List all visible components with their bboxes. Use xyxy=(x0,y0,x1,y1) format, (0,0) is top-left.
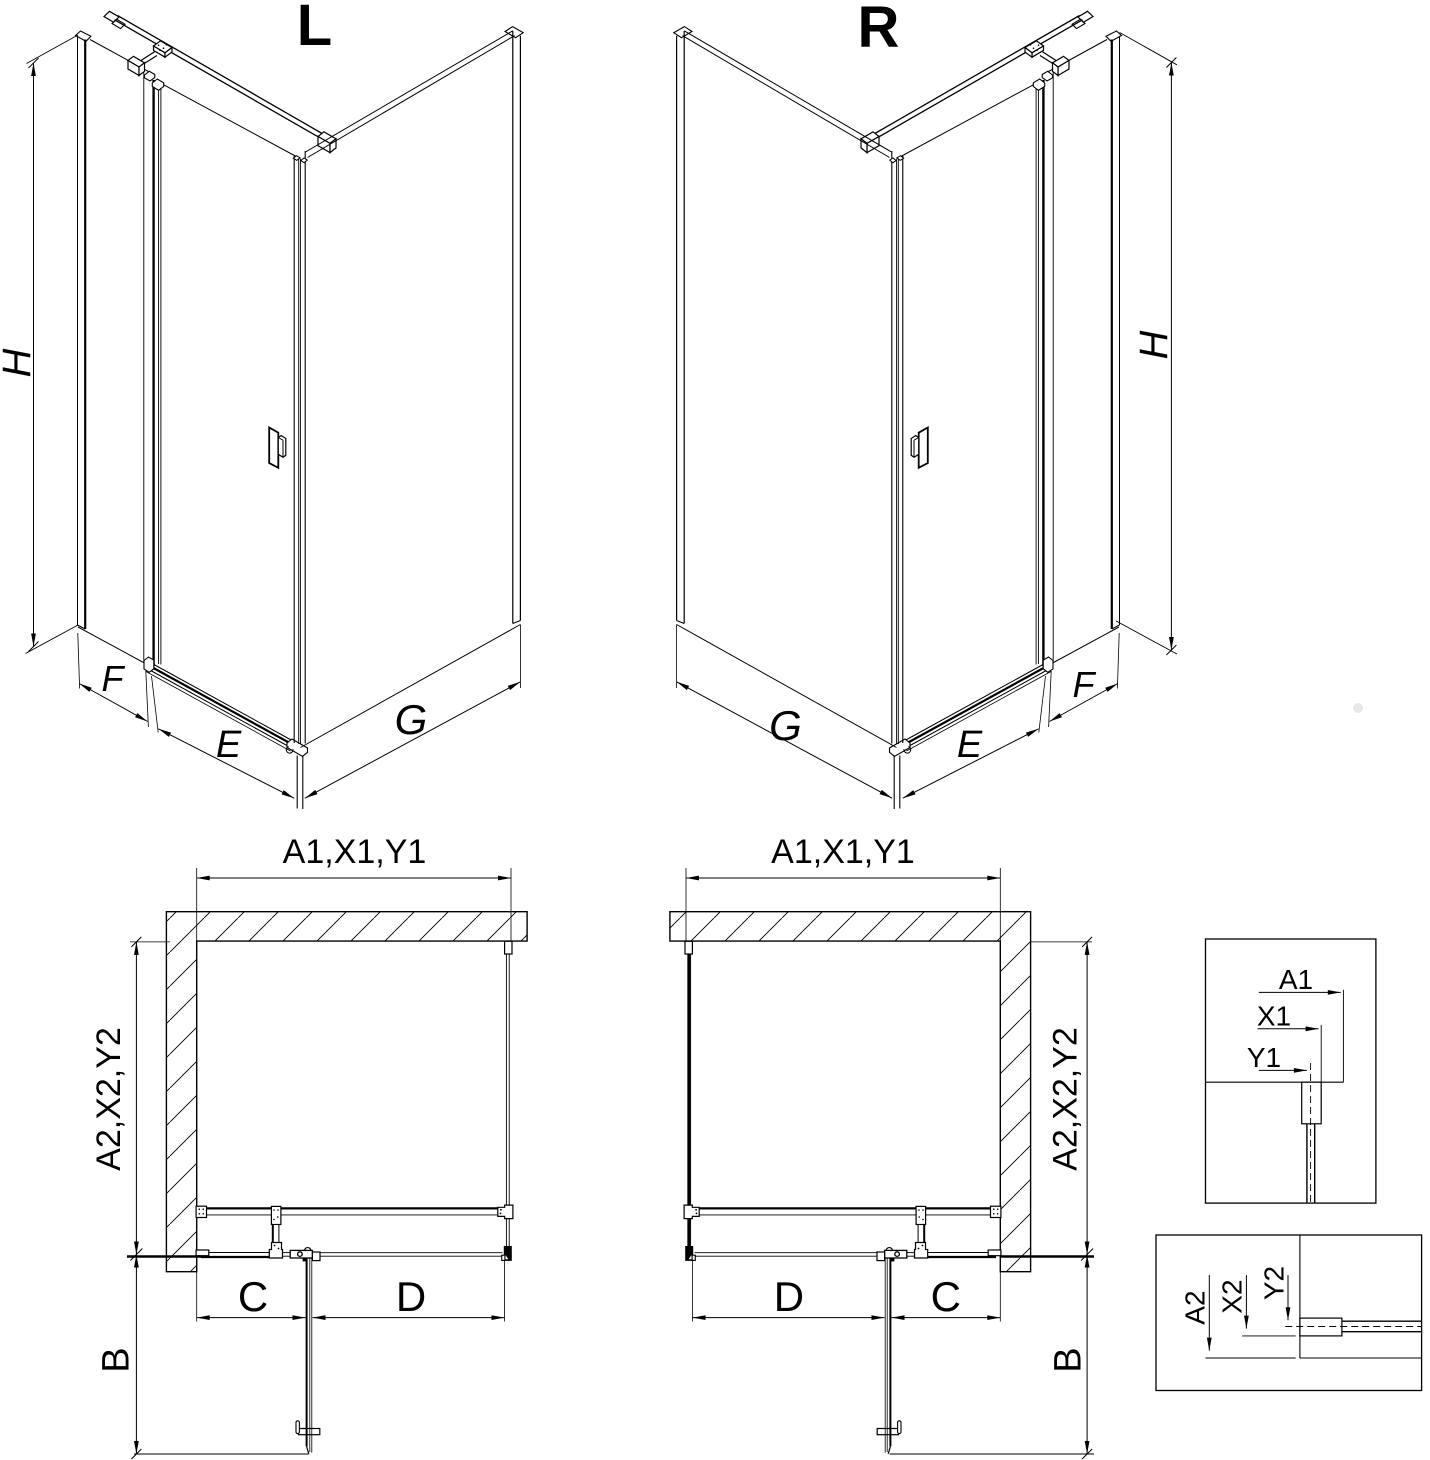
svg-text:X2: X2 xyxy=(1217,1279,1248,1313)
svg-text:F: F xyxy=(102,658,126,699)
svg-text:D: D xyxy=(774,1273,804,1320)
svg-text:C: C xyxy=(238,1273,268,1320)
svg-text:D: D xyxy=(396,1273,426,1320)
svg-text:Y1: Y1 xyxy=(1247,1042,1281,1073)
svg-text:G: G xyxy=(769,702,802,749)
svg-text:Y2: Y2 xyxy=(1259,1266,1290,1300)
svg-text:A2: A2 xyxy=(1180,1290,1211,1324)
svg-text:A1,X1,Y1: A1,X1,Y1 xyxy=(283,833,427,871)
svg-text:A1: A1 xyxy=(1279,964,1313,995)
svg-text:L: L xyxy=(297,0,332,58)
svg-text:A1,X1,Y1: A1,X1,Y1 xyxy=(771,833,915,871)
svg-text:F: F xyxy=(1073,664,1097,705)
svg-text:A2,X2,Y2: A2,X2,Y2 xyxy=(1047,1027,1085,1171)
svg-text:R: R xyxy=(858,0,900,60)
svg-text:G: G xyxy=(395,696,428,743)
svg-text:C: C xyxy=(931,1273,961,1320)
svg-text:X1: X1 xyxy=(1257,1001,1291,1032)
svg-text:H: H xyxy=(1132,330,1176,359)
svg-text:E: E xyxy=(957,724,983,766)
svg-text:B: B xyxy=(1048,1347,1090,1372)
svg-text:B: B xyxy=(96,1347,138,1372)
svg-text:E: E xyxy=(216,724,242,766)
svg-text:H: H xyxy=(0,348,39,377)
svg-text:A2,X2,Y2: A2,X2,Y2 xyxy=(90,1027,128,1171)
